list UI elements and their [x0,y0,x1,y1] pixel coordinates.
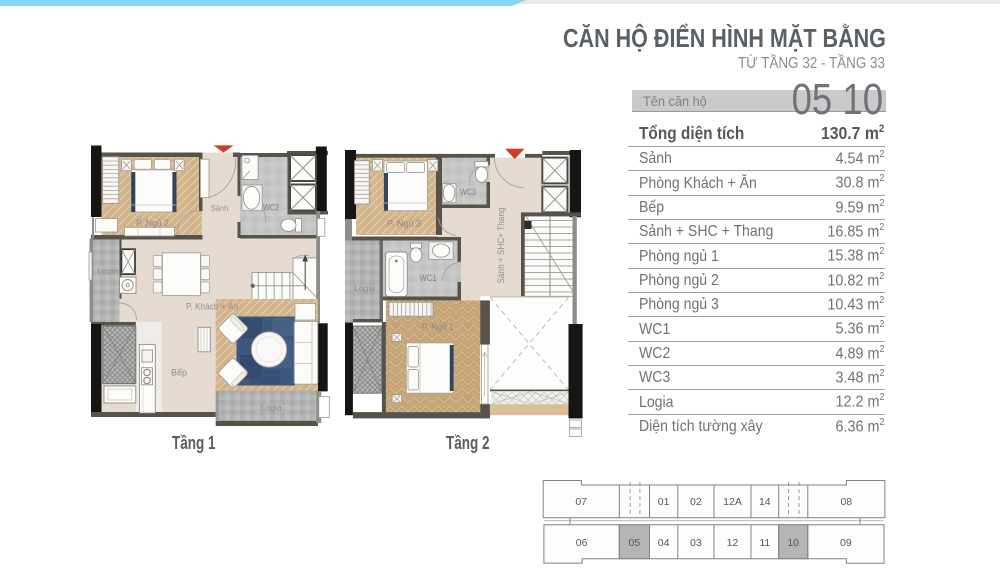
svg-text:02: 02 [690,496,702,508]
svg-text:WC1: WC1 [420,273,437,284]
svg-text:09: 09 [840,537,852,549]
svg-text:01: 01 [658,496,670,508]
svg-text:Logia: Logia [97,266,118,276]
svg-text:05: 05 [629,537,641,549]
svg-text:03: 03 [690,537,702,549]
svg-text:WC3: WC3 [460,187,476,198]
svg-text:P. Ngủ 2: P. Ngủ 2 [136,218,169,229]
svg-text:12: 12 [727,537,739,549]
svg-text:07: 07 [575,496,587,508]
svg-text:Sảnh: Sảnh [211,203,229,213]
svg-text:Logia: Logia [354,283,375,293]
svg-text:Logia: Logia [261,403,282,413]
svg-text:WC2: WC2 [263,203,279,214]
svg-text:06: 06 [576,537,588,549]
svg-text:12A: 12A [723,496,742,508]
svg-text:08: 08 [840,496,852,508]
svg-text:P. Ngủ 3: P. Ngủ 3 [387,219,421,230]
svg-text:04: 04 [658,537,670,549]
svg-text:Sảnh + SHC+ Thang: Sảnh + SHC+ Thang [496,208,506,284]
svg-text:Bếp: Bếp [171,368,187,379]
svg-text:10: 10 [787,537,799,549]
svg-text:11: 11 [759,537,770,549]
svg-text:P. Ngủ 1: P. Ngủ 1 [422,322,454,333]
svg-text:14: 14 [759,496,771,508]
svg-text:P. Khách + Ăn: P. Khách + Ăn [186,302,238,313]
